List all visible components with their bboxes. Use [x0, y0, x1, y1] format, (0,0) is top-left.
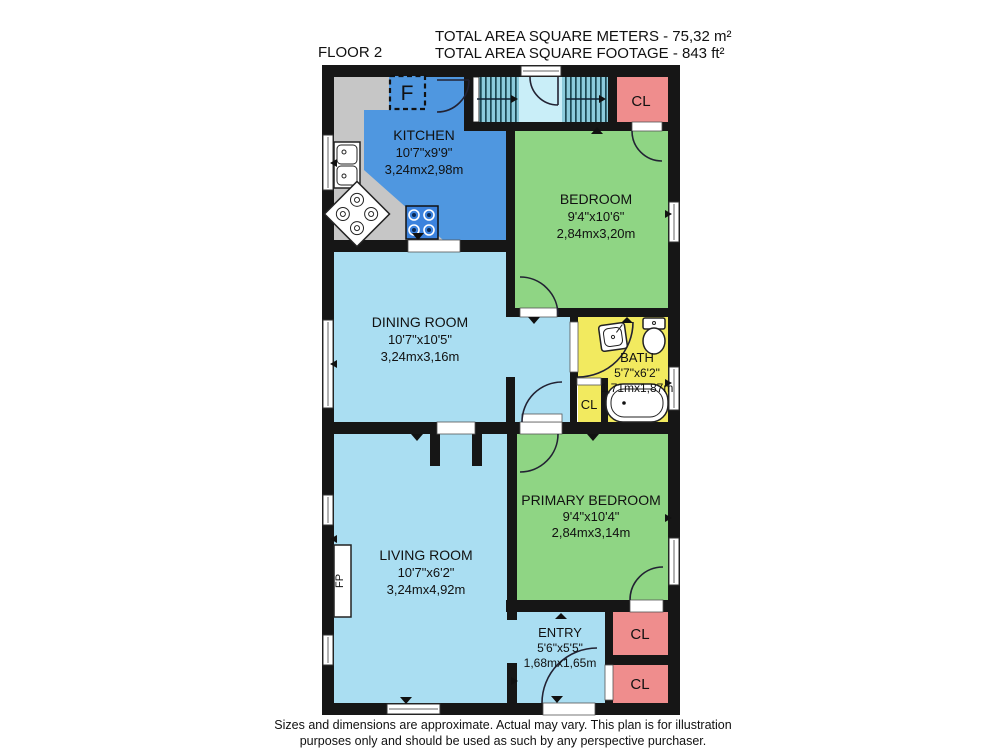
- primary-bedroom-label: PRIMARY BEDROOM: [521, 492, 661, 508]
- living-room-dim-metric: 3,24mx4,92m: [387, 582, 466, 597]
- hall-opening-floor: [506, 315, 515, 377]
- dining-living-passthrough: [437, 422, 475, 434]
- bath-closet-door-opening: [577, 378, 601, 385]
- closet-2-label: CL: [630, 676, 649, 693]
- bedroom-dim-imperial: 9'4"x10'6": [568, 209, 625, 224]
- window: [323, 635, 333, 665]
- primary-bedroom-dim-imperial: 9'4"x10'4": [563, 509, 620, 524]
- total-area-meters: TOTAL AREA SQUARE METERS - 75,32 m²: [435, 28, 731, 45]
- closet-bath-label: CL: [581, 397, 598, 412]
- kitchen-dim-imperial: 10'7"x9'9": [396, 145, 453, 160]
- floor-label: FLOOR 2: [318, 44, 382, 61]
- hall-door-leaf: [522, 414, 562, 422]
- bath-dim-imperial: 5'7"x6'2": [614, 366, 660, 380]
- dining-room-dim-imperial: 10'7"x10'5": [388, 332, 452, 347]
- kitchen-dining-opening: [408, 240, 460, 252]
- living-entry-doorway-floor: [507, 620, 517, 663]
- closet-1-door-opening: [630, 600, 663, 612]
- bedroom-dim-metric: 2,84mx3,20m: [557, 226, 636, 241]
- entry-label: ENTRY: [538, 625, 582, 640]
- toilet: [643, 318, 665, 354]
- window: [521, 66, 561, 76]
- bath-door-opening: [570, 322, 578, 372]
- disclaimer-line-1: Sizes and dimensions are approximate. Ac…: [274, 718, 731, 732]
- window: [387, 704, 440, 714]
- living-room-dim-imperial: 10'7"x6'2": [398, 565, 455, 580]
- closet-top-label: CL: [631, 93, 650, 110]
- hall-primary-door-opening: [520, 422, 562, 434]
- living-room-label: LIVING ROOM: [379, 547, 472, 563]
- dining-room-dim-metric: 3,24mx3,16m: [381, 349, 460, 364]
- refrigerator-label: F: [401, 82, 414, 105]
- dining-room-label: DINING ROOM: [372, 314, 468, 330]
- bath-dim-metric: 1,71mx1,87m: [601, 381, 674, 395]
- bedroom-door-opening: [520, 308, 557, 317]
- closet-2-door-leaf: [605, 665, 613, 700]
- bath-sink: [598, 322, 627, 351]
- entry-dim-imperial: 5'6"x5'5": [537, 641, 583, 655]
- window: [669, 202, 679, 242]
- disclaimer-line-2: purposes only and should be used as such…: [300, 734, 707, 748]
- entry-front-door-opening: [543, 703, 595, 715]
- window: [669, 538, 679, 585]
- refrigerator: F: [390, 76, 425, 109]
- kitchen-label: KITCHEN: [393, 127, 454, 143]
- fireplace-label: FP: [334, 574, 346, 588]
- floor-plan-page: FLOOR 2 TOTAL AREA SQUARE METERS - 75,32…: [0, 0, 1000, 756]
- bedroom-label: BEDROOM: [560, 191, 632, 207]
- total-area-feet: TOTAL AREA SQUARE FOOTAGE - 843 ft²: [435, 45, 725, 62]
- closet-top-door-opening: [632, 122, 662, 131]
- closet-1-label: CL: [630, 626, 649, 643]
- floor-plan: FLOOR 2 TOTAL AREA SQUARE METERS - 75,32…: [0, 0, 1000, 756]
- fireplace: FP: [334, 545, 351, 617]
- hallway-floor: [515, 317, 570, 422]
- primary-bedroom-dim-metric: 2,84mx3,14m: [552, 525, 631, 540]
- entry-dim-metric: 1,68mx1,65m: [524, 656, 597, 670]
- kitchen-dim-metric: 3,24mx2,98m: [385, 162, 464, 177]
- window: [323, 495, 333, 525]
- bath-label: BATH: [620, 350, 654, 365]
- kitchen-sink: [334, 142, 360, 188]
